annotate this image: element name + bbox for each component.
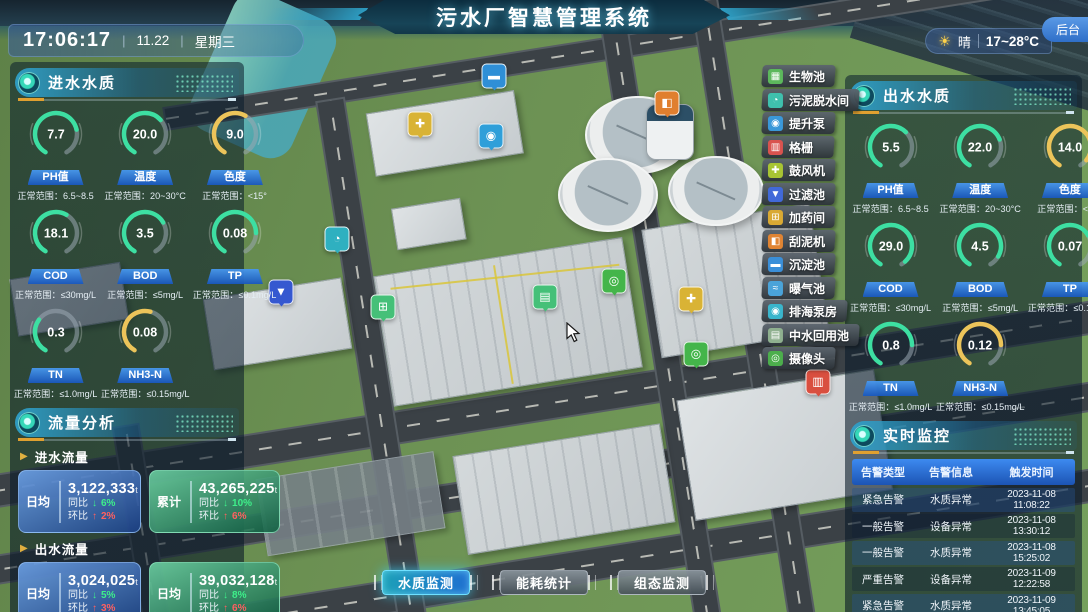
grille-marker[interactable]: ▥ xyxy=(806,370,831,395)
gauge-TN: 0.3TN正常范围：≤1.0mg/L xyxy=(12,306,99,400)
gauge-normal-range: 正常范围：≤1.0mg/L xyxy=(14,386,98,399)
flow-card-unit: t xyxy=(135,577,138,587)
menu-item-生物池[interactable]: ▦生物池 xyxy=(761,65,836,87)
section-dots-decor xyxy=(175,74,233,92)
alarm-type: 一般告警 xyxy=(852,545,914,560)
gauge-ring: 14.0 xyxy=(1041,121,1088,175)
clock-separator: | xyxy=(122,33,125,48)
alarm-info: 水质异常 xyxy=(914,598,988,612)
scraper-marker[interactable]: ◧ xyxy=(655,91,680,116)
section-dots-decor xyxy=(175,414,233,432)
stat-value: 6% xyxy=(101,497,115,510)
clock-bar: 17:06:17 | 11.22 | 星期三 xyxy=(8,24,304,57)
flow-card-stat: 同比↓10% xyxy=(199,497,277,510)
section-underline xyxy=(18,439,236,441)
clock-weekday: 星期三 xyxy=(195,31,236,51)
stat-name: 环比 xyxy=(199,602,219,612)
flow-card-stat: 环比↑2% xyxy=(68,510,138,523)
arrow-up-icon: ↑ xyxy=(223,602,228,612)
flow-card-stat: 环比↑6% xyxy=(199,510,277,523)
sludge-dewater-marker[interactable]: ◔ xyxy=(325,227,350,252)
gauge-label-ribbon: 色度 xyxy=(207,170,263,185)
arrow-down-icon: ↓ xyxy=(92,589,97,602)
flow-card-value: 39,032,128t xyxy=(199,573,277,589)
title-right-wing xyxy=(720,8,824,20)
alarm-time: 2023-11-08 15:25:02 xyxy=(988,542,1075,564)
flow-analysis-header: 流量分析 xyxy=(15,408,239,437)
gauge-value: 29.0 xyxy=(878,240,902,254)
gauge-normal-range: 正常范围：≤5mg/L xyxy=(936,300,1025,313)
water-reuse-pool-icon: ▤ xyxy=(768,327,783,342)
gauge-normal-range: 正常范围：≤30mg/L xyxy=(14,287,98,300)
dosing-room-marker[interactable]: ⊞ xyxy=(371,295,396,320)
sea-pump-house-icon: ◉ xyxy=(768,304,783,319)
section-title: 实时监控 xyxy=(883,425,951,446)
section-title: 进水水质 xyxy=(48,72,116,93)
tab-水质监测[interactable]: 水质监测 xyxy=(382,570,470,595)
arrow-up-icon: ↑ xyxy=(92,510,97,523)
stat-value: 6% xyxy=(232,510,246,523)
alarm-time: 2023-11-09 12:22:58 xyxy=(988,568,1075,590)
menu-item-曝气池[interactable]: ≈曝气池 xyxy=(761,277,836,299)
gauge-label-ribbon: PH值 xyxy=(28,170,84,185)
stat-name: 同比 xyxy=(199,497,219,510)
gauge-normal-range: 正常范围：<15° xyxy=(1028,201,1088,214)
alarm-table-body: 紧急告警水质异常2023-11-08 11:08:22一般告警设备异常2023-… xyxy=(852,488,1075,612)
gauge-ring: 4.5 xyxy=(951,220,1009,274)
lift-pump-marker[interactable]: ◉ xyxy=(479,124,504,149)
clarifier-tank xyxy=(558,158,658,232)
arrow-down-icon: ↓ xyxy=(223,589,228,602)
settling-tank-marker[interactable]: ▬ xyxy=(482,64,507,89)
alarm-row: 一般告警设备异常2023-11-08 13:30:12 xyxy=(852,514,1075,538)
triangle-right-icon: ▶ xyxy=(20,451,29,462)
stat-value: 2% xyxy=(101,510,115,523)
gauge-value: 0.3 xyxy=(47,326,64,340)
mud-scraper-icon: ◧ xyxy=(768,233,783,248)
menu-item-过滤池[interactable]: ▼过滤池 xyxy=(761,183,836,205)
backstage-button[interactable]: 后台 xyxy=(1042,17,1088,42)
gauge-value: 0.8 xyxy=(882,339,899,353)
gauge-label-ribbon: COD xyxy=(863,282,919,297)
gauge-value: 20.0 xyxy=(133,128,157,142)
flow-card-stat: 同比↓5% xyxy=(68,589,138,602)
gauge-label-ribbon: TP xyxy=(207,269,263,284)
camera-icon: ◎ xyxy=(768,351,783,366)
section-dots-decor xyxy=(1013,427,1071,445)
flow-card-tag: 日均 xyxy=(157,585,183,602)
alarm-time: 2023-11-08 11:08:22 xyxy=(988,489,1075,511)
reuse-pool-marker[interactable]: ▤ xyxy=(533,285,558,310)
stat-name: 同比 xyxy=(68,497,88,510)
outlet-panel: 出水水质 5.5PH值正常范围：6.5~8.522.0温度正常范围：20~30°… xyxy=(845,75,1082,612)
menu-item-中水回用池[interactable]: ▤中水回用池 xyxy=(761,324,860,346)
menu-item-污泥脱水间[interactable]: ◔污泥脱水间 xyxy=(761,89,860,111)
gauge-ring: 18.1 xyxy=(27,207,85,261)
gauge-normal-range: 正常范围：≤5mg/L xyxy=(101,287,190,300)
gauge-label-ribbon: 色度 xyxy=(1042,183,1088,198)
alarm-row: 紧急告警水质异常2023-11-08 11:08:22 xyxy=(852,488,1075,512)
gauge-value: 0.08 xyxy=(133,326,157,340)
menu-item-刮泥机[interactable]: ◧刮泥机 xyxy=(761,230,836,252)
gauge-label-ribbon: BOD xyxy=(117,269,173,284)
alarm-type: 紧急告警 xyxy=(852,598,914,612)
flow-card: 日均3,024,025t同比↓5%环比↑3% xyxy=(18,562,141,612)
section-underline xyxy=(853,452,1074,454)
alarm-type: 紧急告警 xyxy=(852,492,914,507)
stat-name: 同比 xyxy=(68,589,88,602)
clock-date: 11.22 xyxy=(136,33,169,48)
gauge-BOD: 4.5BOD正常范围：≤5mg/L xyxy=(934,220,1026,314)
stat-value: 8% xyxy=(232,589,246,602)
gauge-value: 7.7 xyxy=(47,128,64,142)
alarm-row: 一般告警水质异常2023-11-08 15:25:02 xyxy=(852,541,1075,565)
gauge-value: 5.5 xyxy=(882,141,899,155)
section-underline xyxy=(853,112,1074,114)
alarm-type: 严重告警 xyxy=(852,572,914,587)
gauge-normal-range: 正常范围：≤0.15mg/L xyxy=(936,399,1025,412)
gauge-normal-range: 正常范围：≤0.1mg/L xyxy=(193,287,277,300)
outlet-gauge-grid: 5.5PH值正常范围：6.5~8.522.0温度正常范围：20~30°C14.0… xyxy=(845,114,1082,415)
flow-card: 日均39,032,128t同比↓8%环比↑6% xyxy=(149,562,280,612)
flow-card-value: 3,122,333t xyxy=(68,481,138,497)
gauge-normal-range: 正常范围：≤1.0mg/L xyxy=(849,399,933,412)
clock-separator: | xyxy=(180,33,183,48)
arrow-up-icon: ↑ xyxy=(223,510,228,523)
alarm-column-header: 告警类型 xyxy=(852,464,914,480)
tab-组态监测[interactable]: 组态监测 xyxy=(618,570,706,595)
camera-marker[interactable]: ◎ xyxy=(602,269,627,294)
gauge-ring: 5.5 xyxy=(862,121,920,175)
stat-name: 环比 xyxy=(68,602,88,612)
stat-name: 环比 xyxy=(199,510,219,523)
menu-item-label: 生物池 xyxy=(789,68,825,85)
section-dots-decor xyxy=(1013,87,1071,105)
gauge-normal-range: 正常范围：<15° xyxy=(193,188,277,201)
gauge-label-ribbon: 温度 xyxy=(117,170,173,185)
gauge-normal-range: 正常范围：≤30mg/L xyxy=(849,300,933,313)
gauge-value: 3.5 xyxy=(137,227,154,241)
gauge-normal-range: 正常范围：20~30°C xyxy=(936,201,1025,214)
menu-item-label: 提升泵 xyxy=(789,115,825,132)
alarm-row: 紧急告警水质异常2023-11-09 13:45:05 xyxy=(852,594,1075,612)
camera-marker-2[interactable]: ◎ xyxy=(684,342,709,367)
gauge-温度: 20.0温度正常范围：20~30°C xyxy=(99,108,191,202)
gauge-色度: 14.0色度正常范围：<15° xyxy=(1026,121,1088,215)
parking-lot xyxy=(256,451,446,556)
facility-menu: ▦生物池◔污泥脱水间◉提升泵▥格栅✚鼓风机▼过滤池⊞加药间◧刮泥机▬沉淀池≈曝气… xyxy=(762,65,859,369)
flow-card: 累计43,265,225t同比↓10%环比↑6% xyxy=(149,470,280,533)
alarm-table-header: 告警类型告警信息触发时间 xyxy=(852,459,1075,485)
alarm-time: 2023-11-08 13:30:12 xyxy=(988,515,1075,537)
sun-icon: ☀ xyxy=(938,33,951,50)
blower-marker-2[interactable]: ✚ xyxy=(679,287,704,312)
section-radar-icon xyxy=(18,72,40,94)
menu-item-label: 过滤池 xyxy=(789,185,825,202)
weather-bar: ☀ 晴 17~28°C xyxy=(925,28,1052,54)
flow-card-stat: 环比↑6% xyxy=(199,602,277,612)
inlet-gauge-grid: 7.7PH值正常范围：6.5~8.520.0温度正常范围：20~30°C9.0色… xyxy=(10,101,244,402)
flow-group-title: 进水流量 xyxy=(35,447,89,466)
gauge-COD: 29.0COD正常范围：≤30mg/L xyxy=(847,220,934,314)
flow-card-body: 3,024,025t同比↓5%环比↑3% xyxy=(59,573,138,612)
gauge-PH值: 7.7PH值正常范围：6.5~8.5 xyxy=(12,108,99,202)
weather-condition: 晴 xyxy=(958,32,971,51)
gauge-label-ribbon: TP xyxy=(1042,282,1088,297)
menu-item-label: 格栅 xyxy=(789,138,813,155)
stat-value: 5% xyxy=(101,589,115,602)
gauge-label-ribbon: PH值 xyxy=(863,183,919,198)
menu-item-沉淀池[interactable]: ▬沉淀池 xyxy=(761,253,836,275)
menu-item-格栅[interactable]: ▥格栅 xyxy=(761,136,835,158)
settling-tank-icon: ▬ xyxy=(768,257,783,272)
gauge-normal-range: 正常范围：6.5~8.5 xyxy=(14,188,98,201)
triangle-right-icon: ▶ xyxy=(20,543,29,554)
gauge-ring: 3.5 xyxy=(116,207,174,261)
alarm-table: 告警类型告警信息触发时间 紧急告警水质异常2023-11-08 11:08:22… xyxy=(845,454,1082,612)
flow-card-body: 3,122,333t同比↓6%环比↑2% xyxy=(59,481,138,523)
dosing-room-icon: ⊞ xyxy=(768,210,783,225)
arrow-up-icon: ↑ xyxy=(92,602,97,612)
flow-card-unit: t xyxy=(275,577,278,587)
flow-card-stat: 环比↑3% xyxy=(68,602,138,612)
gauge-TP: 0.07TP正常范围：≤0.1mg/L xyxy=(1026,220,1088,314)
temperature-range: 17~28°C xyxy=(986,34,1039,49)
flow-cards-row: 日均3,024,025t同比↓5%环比↑3%日均39,032,128t同比↓8%… xyxy=(10,562,244,612)
menu-item-label: 沉淀池 xyxy=(789,256,825,273)
gauge-ring: 22.0 xyxy=(951,121,1009,175)
gauge-value: 14.0 xyxy=(1058,141,1082,155)
gauge-TP: 0.08TP正常范围：≤0.1mg/L xyxy=(191,207,278,301)
section-title: 流量分析 xyxy=(48,412,116,433)
title-left-wing xyxy=(264,8,368,20)
alarm-info: 设备异常 xyxy=(914,572,988,587)
gauge-ring: 0.07 xyxy=(1041,220,1088,274)
gauge-normal-range: 正常范围：6.5~8.5 xyxy=(849,201,933,214)
flow-card-unit: t xyxy=(275,485,278,495)
grille-icon: ▥ xyxy=(768,139,783,154)
gauge-label-ribbon: 温度 xyxy=(952,183,1008,198)
flow-group-label: ▶出水流量 xyxy=(10,533,244,562)
gauge-label-ribbon: TN xyxy=(863,381,919,396)
gauge-label-ribbon: BOD xyxy=(952,282,1008,297)
flow-card-stat: 同比↓6% xyxy=(68,497,138,510)
flow-card-tag: 日均 xyxy=(26,493,52,510)
arrow-down-icon: ↓ xyxy=(92,497,97,510)
flow-card-tag: 日均 xyxy=(26,585,52,602)
menu-item-排海泵房[interactable]: ◉排海泵房 xyxy=(761,300,848,322)
inlet-panel: 进水水质 7.7PH值正常范围：6.5~8.520.0温度正常范围：20~30°… xyxy=(10,62,244,612)
arrow-down-icon: ↓ xyxy=(223,497,228,510)
stat-value: 6% xyxy=(232,602,246,612)
flow-group-title: 出水流量 xyxy=(35,539,89,558)
flow-card-body: 39,032,128t同比↓8%环比↑6% xyxy=(190,573,277,612)
clarifier-tank xyxy=(668,156,764,226)
gauge-温度: 22.0温度正常范围：20~30°C xyxy=(934,121,1026,215)
alarm-info: 水质异常 xyxy=(914,545,988,560)
alarm-info: 设备异常 xyxy=(914,519,988,534)
menu-item-提升泵[interactable]: ◉提升泵 xyxy=(761,112,836,134)
gauge-ring: 20.0 xyxy=(116,108,174,162)
outlet-quality-header: 出水水质 xyxy=(850,81,1077,110)
gauge-normal-range: 正常范围：≤0.1mg/L xyxy=(1028,300,1088,313)
flow-card-stat: 同比↓8% xyxy=(199,589,277,602)
gauge-色度: 9.0色度正常范围：<15° xyxy=(191,108,278,202)
menu-item-加药间[interactable]: ⊞加药间 xyxy=(761,206,836,228)
gauge-value: 18.1 xyxy=(43,227,67,241)
gauge-ring: 0.3 xyxy=(27,306,85,360)
page-title: 污水厂智慧管理系统 xyxy=(436,2,652,32)
inlet-quality-header: 进水水质 xyxy=(15,68,239,97)
aeration-tank-icon: ≈ xyxy=(768,280,783,295)
gauge-COD: 18.1COD正常范围：≤30mg/L xyxy=(12,207,99,301)
alarm-column-header: 触发时间 xyxy=(988,464,1075,480)
bottom-tab-bar: 水质监测能耗统计组态监测 xyxy=(382,570,706,595)
menu-item-label: 中水回用池 xyxy=(789,326,849,343)
gauge-ring: 7.7 xyxy=(27,108,85,162)
gauge-ring: 0.08 xyxy=(116,306,174,360)
gauge-label-ribbon: NH3-N xyxy=(952,381,1008,396)
gauge-PH值: 5.5PH值正常范围：6.5~8.5 xyxy=(847,121,934,215)
section-radar-icon xyxy=(853,425,875,447)
building xyxy=(452,423,675,555)
lift-pump-icon: ◉ xyxy=(768,116,783,131)
stat-name: 环比 xyxy=(68,510,88,523)
clock-time: 17:06:17 xyxy=(23,29,111,52)
gauge-TN: 0.8TN正常范围：≤1.0mg/L xyxy=(847,319,934,413)
stat-name: 同比 xyxy=(199,589,219,602)
menu-item-鼓风机[interactable]: ✚鼓风机 xyxy=(761,159,836,181)
app-title-bar: 污水厂智慧管理系统 xyxy=(358,0,730,34)
flow-card-value: 43,265,225t xyxy=(199,481,277,497)
flow-card-unit: t xyxy=(135,485,138,495)
menu-item-label: 排海泵房 xyxy=(789,303,837,320)
section-underline xyxy=(18,99,236,101)
gauge-NH3-N: 0.08NH3-N正常范围：≤0.15mg/L xyxy=(99,306,191,400)
flow-card-tag: 累计 xyxy=(157,493,183,510)
gauge-BOD: 3.5BOD正常范围：≤5mg/L xyxy=(99,207,191,301)
gauge-normal-range: 正常范围：≤0.15mg/L xyxy=(101,386,190,399)
menu-item-label: 摄像头 xyxy=(789,350,825,367)
gauge-label-ribbon: TN xyxy=(28,368,84,383)
gauge-value: 9.0 xyxy=(226,128,243,142)
alarm-type: 一般告警 xyxy=(852,519,914,534)
bio-pool-icon: ▦ xyxy=(768,69,783,84)
sludge-dewater-icon: ◔ xyxy=(768,92,783,107)
menu-item-label: 鼓风机 xyxy=(789,162,825,179)
blower-fan-icon: ✚ xyxy=(768,163,783,178)
realtime-monitor-header: 实时监控 xyxy=(850,421,1077,450)
alarm-time: 2023-11-09 13:45:05 xyxy=(988,595,1075,612)
gauge-NH3-N: 0.12NH3-N正常范围：≤0.15mg/L xyxy=(934,319,1026,413)
gauge-ring: 9.0 xyxy=(206,108,264,162)
gauge-label-ribbon: NH3-N xyxy=(117,368,173,383)
gauge-ring: 0.12 xyxy=(951,319,1009,373)
section-title: 出水水质 xyxy=(883,85,951,106)
gauge-label-ribbon: COD xyxy=(28,269,84,284)
mouse-cursor xyxy=(566,322,582,344)
alarm-column-header: 告警信息 xyxy=(914,464,988,480)
alarm-row: 严重告警设备异常2023-11-09 12:22:58 xyxy=(852,567,1075,591)
weather-divider xyxy=(978,34,979,48)
alarm-info: 水质异常 xyxy=(914,492,988,507)
stat-value: 3% xyxy=(101,602,115,612)
gauge-value: 22.0 xyxy=(968,141,992,155)
blower-marker[interactable]: ✚ xyxy=(408,112,433,137)
gauge-value: 0.08 xyxy=(223,227,247,241)
stat-value: 10% xyxy=(232,497,252,510)
gauge-ring: 29.0 xyxy=(862,220,920,274)
gauge-value: 0.12 xyxy=(968,339,992,353)
menu-item-label: 污泥脱水间 xyxy=(789,91,849,108)
menu-item-label: 曝气池 xyxy=(789,279,825,296)
gauge-ring: 0.08 xyxy=(206,207,264,261)
flow-cards-row: 日均3,122,333t同比↓6%环比↑2%累计43,265,225t同比↓10… xyxy=(10,470,244,533)
gauge-ring: 0.8 xyxy=(862,319,920,373)
flow-card-value: 3,024,025t xyxy=(68,573,138,589)
building xyxy=(391,198,467,250)
menu-item-label: 刮泥机 xyxy=(789,232,825,249)
tab-能耗统计[interactable]: 能耗统计 xyxy=(500,570,588,595)
menu-item-摄像头[interactable]: ◎摄像头 xyxy=(761,347,836,369)
flow-card-body: 43,265,225t同比↓10%环比↑6% xyxy=(190,481,277,523)
gauge-value: 4.5 xyxy=(972,240,989,254)
flow-group-label: ▶进水流量 xyxy=(10,441,244,470)
flow-groups: ▶进水流量日均3,122,333t同比↓6%环比↑2%累计43,265,225t… xyxy=(10,441,244,612)
gauge-normal-range: 正常范围：20~30°C xyxy=(101,188,190,201)
section-radar-icon xyxy=(18,412,40,434)
menu-item-label: 加药间 xyxy=(789,209,825,226)
dashboard-root: ▬✚◉◧◔▼⊞▤◎✚◎▥ 污水厂智慧管理系统 17:06:17 | 11.22 … xyxy=(0,0,1088,612)
filter-pool-icon: ▼ xyxy=(768,186,783,201)
flow-card: 日均3,122,333t同比↓6%环比↑2% xyxy=(18,470,141,533)
gauge-value: 0.07 xyxy=(1058,240,1082,254)
